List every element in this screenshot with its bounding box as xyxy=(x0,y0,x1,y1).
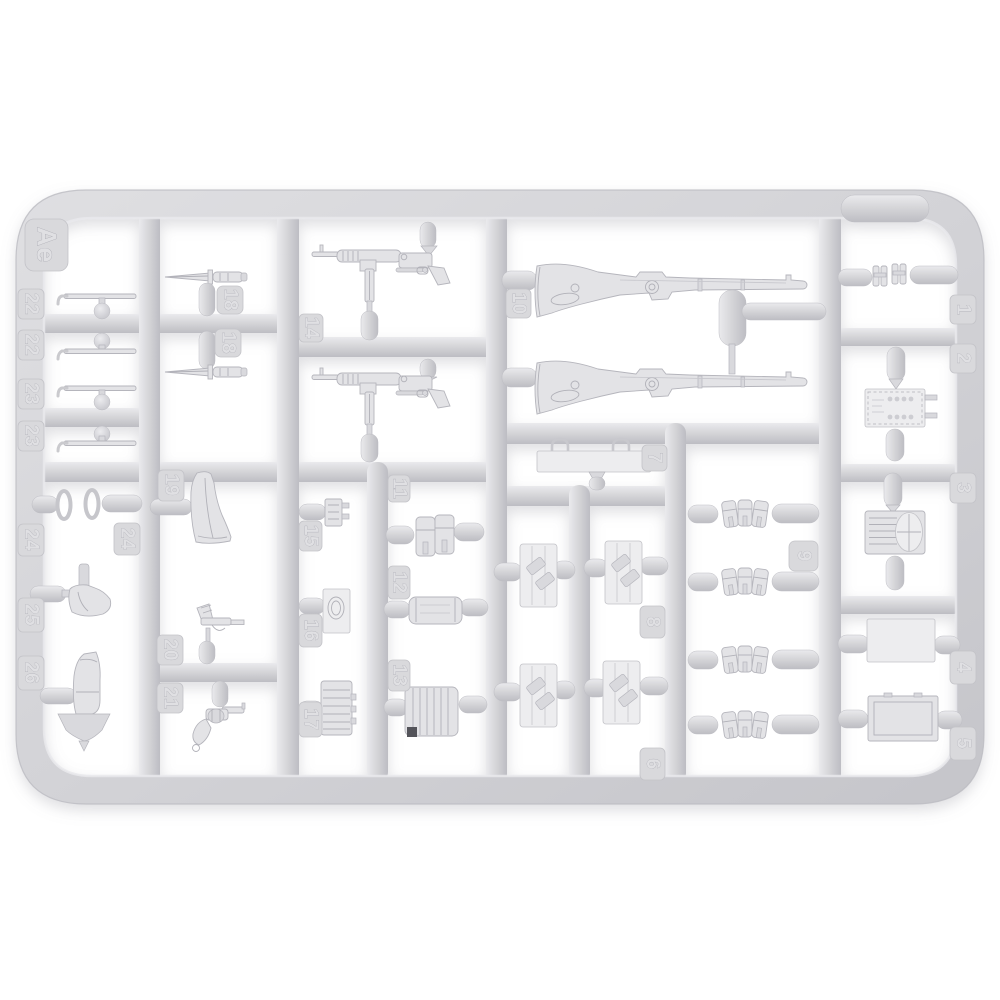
svg-text:18: 18 xyxy=(218,332,239,354)
svg-text:19: 19 xyxy=(161,474,182,496)
part-number-tag-21: 21 xyxy=(157,683,183,713)
part-14-mp40-2 xyxy=(312,359,450,462)
rail-h-rifles xyxy=(490,423,830,444)
svg-text:4: 4 xyxy=(953,662,974,673)
rail-h-col2 xyxy=(145,663,287,682)
rail-v2 xyxy=(277,210,299,784)
part-number-tag-23a: 23 xyxy=(18,379,44,409)
part-number-tag-18a: 18 xyxy=(217,286,243,314)
part-number-tag-4: 4 xyxy=(950,651,976,684)
part-number-tag-23b: 23 xyxy=(18,421,44,451)
part-number-tag-22a: 22 xyxy=(18,289,44,319)
part-8-panel-2 xyxy=(584,541,668,604)
part-6-panel-2 xyxy=(584,661,668,724)
svg-text:18: 18 xyxy=(220,289,241,311)
part-22-rod-2 xyxy=(58,333,136,359)
part-9-pouches-row-4 xyxy=(688,711,819,739)
part-24-rings xyxy=(32,490,142,519)
part-4-flat-panel xyxy=(838,619,960,662)
rail-h-mid xyxy=(28,462,500,482)
svg-text:1: 1 xyxy=(953,304,974,315)
svg-text:9: 9 xyxy=(793,550,814,561)
svg-text:22: 22 xyxy=(21,334,42,356)
rail-v5 xyxy=(819,210,841,784)
svg-text:23: 23 xyxy=(21,383,42,405)
rail-v4 xyxy=(665,423,686,783)
svg-text:21: 21 xyxy=(160,687,181,709)
svg-text:14: 14 xyxy=(301,317,322,339)
part-9-pouches-row-3 xyxy=(688,646,819,674)
part-18-bayonet-1 xyxy=(165,270,247,284)
svg-text:15: 15 xyxy=(300,525,321,547)
part-number-tag-6: 6 xyxy=(640,748,665,780)
svg-text:24: 24 xyxy=(117,528,138,550)
part-23-rod-2 xyxy=(58,426,136,451)
part-9-pouches-row-1 xyxy=(688,500,819,528)
part-number-tag-5: 5 xyxy=(950,727,976,760)
part-number-tag-26: 26 xyxy=(18,656,44,690)
part-number-tag-2: 2 xyxy=(950,344,976,373)
sprue-letter: Ae xyxy=(32,227,62,264)
svg-text:26: 26 xyxy=(21,662,42,684)
part-12-canister xyxy=(384,597,488,624)
svg-text:22: 22 xyxy=(21,293,42,315)
part-number-tag-24a: 24 xyxy=(18,524,44,556)
svg-text:25: 25 xyxy=(21,604,42,626)
part-number-tag-24b: 24 xyxy=(114,523,140,555)
rail-h-right3 xyxy=(824,596,962,614)
svg-text:8: 8 xyxy=(642,616,663,627)
part-number-tag-14: 14 xyxy=(299,314,323,342)
part-3-ammo-drum-case xyxy=(865,473,925,590)
svg-text:10: 10 xyxy=(508,292,529,314)
part-number-tag-7: 7 xyxy=(642,445,667,471)
part-number-tag-25: 25 xyxy=(18,598,44,632)
rail-h-right1 xyxy=(824,328,962,346)
svg-text:11: 11 xyxy=(389,478,410,499)
svg-text:16: 16 xyxy=(300,619,321,641)
svg-text:5: 5 xyxy=(953,738,974,749)
part-number-tag-13: 13 xyxy=(388,660,410,691)
svg-text:24: 24 xyxy=(21,529,42,551)
part-1-binoculars xyxy=(838,264,958,286)
part-13-drum-magazine xyxy=(384,687,487,737)
part-2-equipment-case xyxy=(865,347,937,461)
rail-v3b xyxy=(569,485,590,783)
part-11-double-pouch xyxy=(386,515,484,556)
part-26-holster-spade xyxy=(40,652,110,751)
runner-18a xyxy=(199,283,215,316)
part-9-pouches-row-2 xyxy=(688,568,819,596)
rail-v2b xyxy=(367,462,388,782)
part-number-tag-1: 1 xyxy=(950,295,976,324)
svg-text:6: 6 xyxy=(642,758,663,769)
part-10-rifle-2 xyxy=(502,361,807,414)
svg-text:3: 3 xyxy=(953,482,974,493)
part-number-tag-3: 3 xyxy=(950,473,976,503)
rail-h-left2 xyxy=(28,408,150,427)
part-14-mp40-1 xyxy=(312,222,450,340)
svg-text:17: 17 xyxy=(300,708,321,730)
sprue-letter-tag: Ae xyxy=(25,219,68,271)
runner-rifles-rod xyxy=(729,344,735,374)
part-number-tag-19: 19 xyxy=(158,470,184,501)
runner-rifles-arm xyxy=(742,303,826,320)
part-5-crate-lid xyxy=(838,693,962,741)
svg-text:23: 23 xyxy=(21,425,42,447)
part-number-tag-22b: 22 xyxy=(18,330,44,360)
runner-rifles xyxy=(719,290,746,346)
drum-latch-detail xyxy=(407,727,417,737)
label-boss xyxy=(841,195,929,222)
svg-text:7: 7 xyxy=(644,452,665,463)
part-number-tag-11: 11 xyxy=(388,475,410,502)
svg-text:12: 12 xyxy=(389,571,410,593)
sprue-photo: Ae 22 22 23 23 24 24 25 26 18 18 19 20 2… xyxy=(0,0,1000,1000)
part-number-tag-8: 8 xyxy=(640,606,665,638)
part-number-tag-16: 16 xyxy=(299,614,322,647)
part-number-tag-15: 15 xyxy=(299,521,322,551)
part-23-rod-1 xyxy=(58,386,136,410)
part-7-clamp-plate xyxy=(537,439,651,490)
part-number-tag-17: 17 xyxy=(299,702,322,737)
sprue-drawing: Ae 22 22 23 23 24 24 25 26 18 18 19 20 2… xyxy=(0,0,1000,1000)
runner-18b xyxy=(199,331,215,369)
part-number-tag-10: 10 xyxy=(506,289,531,318)
part-number-tag-12: 12 xyxy=(388,566,410,599)
part-number-tag-20: 20 xyxy=(157,635,183,665)
svg-text:20: 20 xyxy=(160,639,181,661)
part-21-revolver xyxy=(193,681,246,752)
part-number-tag-9: 9 xyxy=(789,541,818,571)
part-number-tag-18b: 18 xyxy=(215,329,241,357)
svg-text:13: 13 xyxy=(389,664,410,686)
svg-text:2: 2 xyxy=(953,353,974,364)
part-20-pistol xyxy=(197,604,244,664)
